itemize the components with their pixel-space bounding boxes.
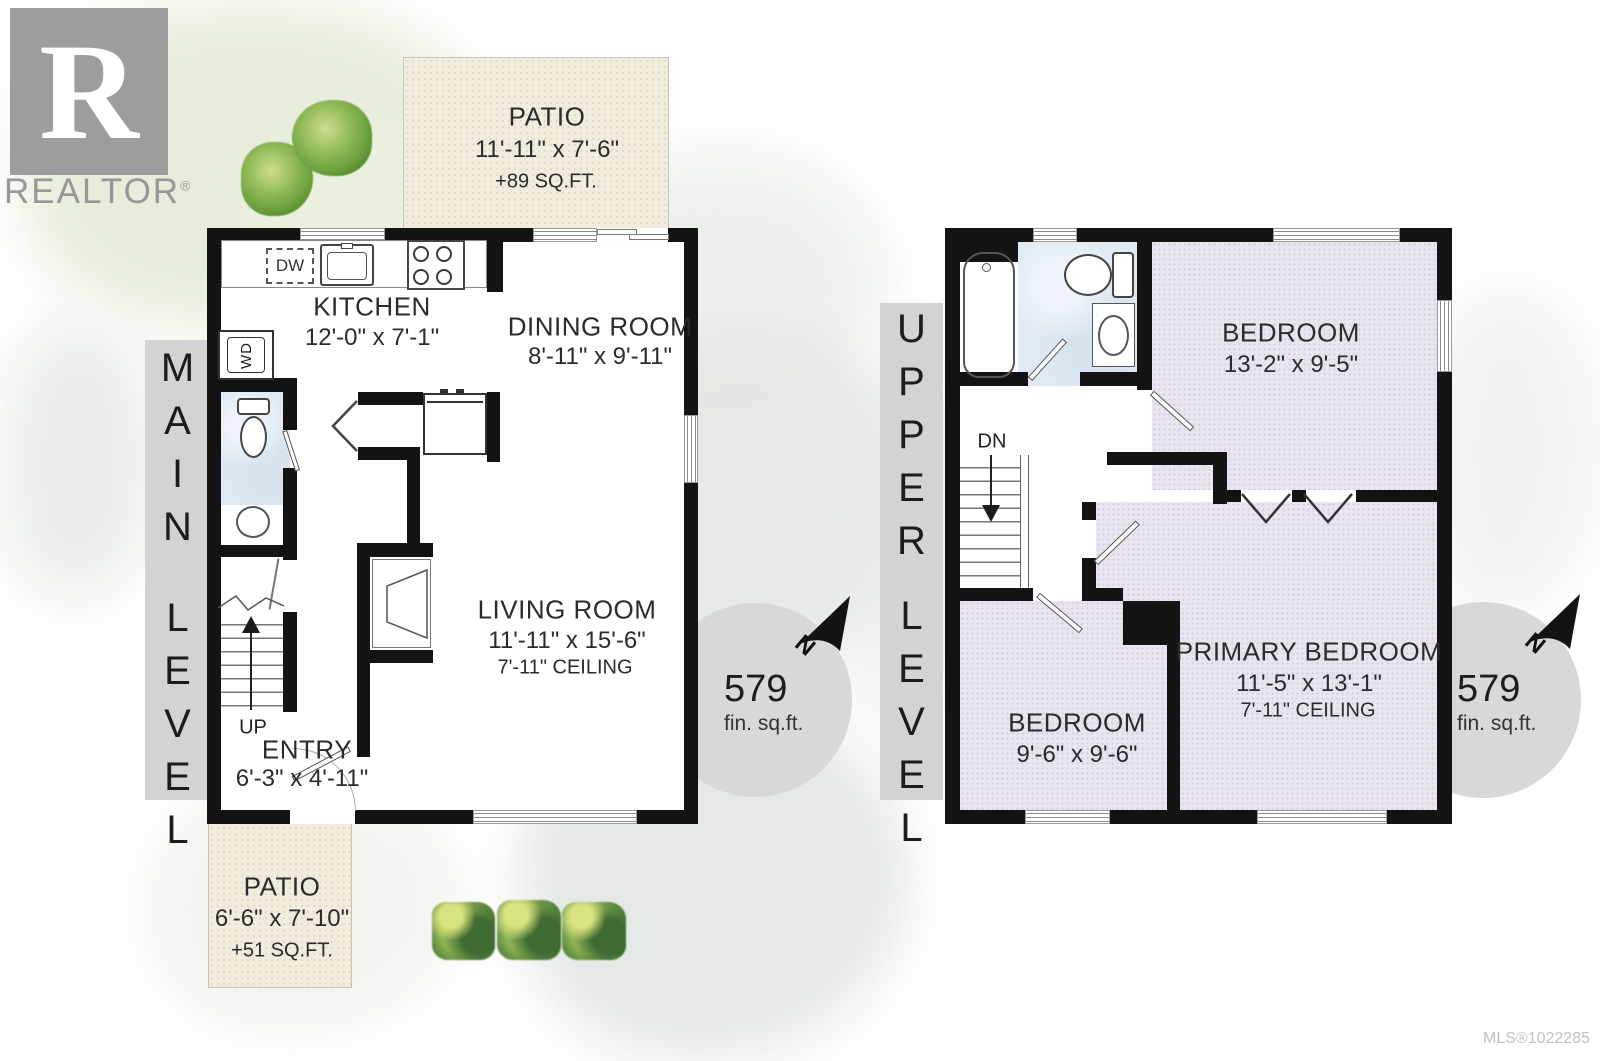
toilet-icon	[237, 398, 270, 415]
wall-segment	[1437, 228, 1452, 300]
burner-icon	[436, 246, 452, 262]
wall-segment	[487, 228, 503, 292]
wall-segment	[1080, 372, 1152, 386]
stairs-arrow-stem	[990, 455, 992, 507]
mls-number: MLS®1022285	[1483, 1030, 1590, 1048]
primary-bedroom-dims: 11'-5" x 13'-1"	[1236, 670, 1382, 698]
upper-level-bar-word2: LEVEL	[892, 594, 932, 859]
fridge-handle	[440, 389, 448, 394]
primary-bedroom-label: PRIMARY BEDROOM	[1176, 637, 1443, 668]
window	[1437, 300, 1452, 372]
wall-segment	[283, 392, 297, 430]
wall-segment	[358, 392, 423, 405]
wall-segment	[207, 810, 290, 824]
wall-segment	[945, 228, 960, 824]
sink-icon	[236, 506, 270, 538]
living-room-label: LIVING ROOM	[478, 595, 657, 626]
kitchen-dims: 12'-0" x 7'-1"	[305, 324, 439, 352]
stairs-arrow-up-icon	[242, 616, 260, 633]
bifold-door-icon	[328, 398, 360, 454]
living-room-dims: 11'-11" x 15'-6"	[488, 627, 645, 655]
tub-drain-icon	[982, 263, 991, 272]
floorplan-canvas: R REALTOR® MAIN LEVEL UPPER LEVEL	[0, 0, 1600, 1061]
toilet-icon	[1112, 252, 1134, 298]
wall-segment	[1096, 588, 1123, 601]
wall-segment	[684, 483, 698, 824]
wall-segment	[1082, 558, 1096, 601]
bifold-door-icon	[1240, 492, 1292, 526]
burner-icon	[413, 246, 429, 262]
burner-icon	[413, 269, 429, 285]
hedge-icon	[497, 900, 561, 960]
fridge-line	[427, 401, 483, 403]
hedge-icon	[432, 902, 495, 960]
wall-segment	[207, 228, 221, 824]
patio-top-dims: 11'-11" x 7'-6"	[475, 136, 619, 164]
burner-icon	[436, 269, 452, 285]
washer-dryer-label: WD	[238, 342, 255, 369]
wall-segment	[1123, 601, 1180, 645]
wall-segment	[945, 810, 1025, 824]
registered-mark: ®	[180, 177, 192, 193]
upper-level-bar: UPPER LEVEL	[880, 303, 943, 800]
wall-segment	[283, 612, 297, 712]
dining-room-dims: 8'-11" x 9'-11"	[528, 343, 672, 371]
wall-segment	[1213, 452, 1227, 504]
dishwasher-label: DW	[276, 256, 304, 276]
wall-segment	[1107, 452, 1227, 465]
wall-segment	[1437, 372, 1452, 824]
stairs-down-label: DN	[978, 431, 1007, 454]
upper-area-unit: fin. sq.ft.	[1457, 712, 1536, 736]
window	[473, 810, 637, 824]
stair-rail	[1020, 455, 1029, 588]
fireplace-icon	[375, 568, 429, 640]
wall-segment	[207, 378, 297, 392]
washer-dryer-inner: WD	[227, 337, 265, 373]
realtor-logo-letter: R	[39, 12, 139, 171]
realtor-wordmark-text: REALTOR	[4, 172, 180, 211]
window	[684, 415, 698, 483]
stair-break-line	[218, 594, 284, 612]
realtor-logo: R	[10, 8, 168, 175]
main-level-bar: MAIN LEVEL	[145, 340, 210, 800]
main-level-bar-word2: LEVEL	[158, 596, 198, 861]
wall-segment	[1227, 490, 1241, 502]
sink-icon	[1098, 315, 1129, 356]
window	[1257, 810, 1387, 824]
wall-segment	[357, 543, 433, 557]
living-room-ceiling: 7'-11" CEILING	[497, 657, 632, 680]
realtor-wordmark: REALTOR®	[4, 172, 192, 212]
entry-label: ENTRY	[262, 735, 352, 766]
patio-top-label: PATIO	[509, 102, 586, 133]
window	[1025, 810, 1110, 824]
bedroom-left-dims: 9'-6" x 9'-6"	[1017, 741, 1138, 769]
wall-segment	[1082, 502, 1096, 520]
wall-segment	[1137, 228, 1152, 390]
kitchen-sink-basin	[327, 252, 367, 280]
dining-room-label: DINING ROOM	[508, 312, 693, 343]
window	[1033, 228, 1077, 242]
fridge-handle	[456, 389, 464, 394]
wall-segment	[357, 650, 433, 663]
wall-segment	[1387, 810, 1452, 824]
wall-segment	[1077, 228, 1273, 242]
entry-dims: 6'-3" x 4'-11"	[236, 765, 368, 793]
wall-segment	[637, 810, 698, 824]
wall-segment	[1356, 490, 1437, 502]
wall-segment	[207, 545, 297, 557]
tree-icon	[292, 100, 372, 176]
bedroom-top-dims: 13'-2" x 9'-5"	[1224, 351, 1358, 379]
wall-segment	[358, 447, 420, 460]
wall-segment	[945, 588, 1033, 601]
primary-bedroom-ceiling: 7'-11" CEILING	[1240, 700, 1375, 723]
watercolor-blob	[0, 320, 160, 600]
window	[533, 228, 597, 242]
main-area-value: 579	[724, 668, 787, 711]
hedge-icon	[562, 902, 626, 960]
faucet-icon	[341, 243, 353, 249]
patio-bottom-area: +51 SQ.FT.	[231, 940, 333, 963]
wall-segment	[407, 460, 420, 545]
dishwasher-icon: DW	[266, 248, 314, 284]
kitchen-label: KITCHEN	[313, 292, 431, 323]
wall-segment	[487, 392, 500, 462]
window	[1273, 228, 1400, 242]
stairs-arrow-stem	[250, 630, 252, 710]
bifold-door-icon	[1302, 492, 1354, 526]
toilet-bowl-icon	[1064, 254, 1112, 296]
patio-bottom-dims: 6'-6" x 7'-10"	[215, 905, 349, 933]
wall-segment	[1167, 645, 1180, 810]
main-area-unit: fin. sq.ft.	[724, 712, 803, 736]
wall-segment	[1110, 810, 1257, 824]
patio-bottom-label: PATIO	[244, 872, 321, 903]
bedroom-left-label: BEDROOM	[1008, 708, 1146, 739]
main-level-bar-word1: MAIN	[158, 346, 198, 558]
toilet-bowl-icon	[240, 416, 267, 458]
sliding-door	[629, 234, 669, 240]
wall-segment	[355, 810, 473, 824]
upper-area-value: 579	[1457, 668, 1520, 711]
upper-level-bar-word1: UPPER	[892, 307, 932, 572]
bedroom-top-label: BEDROOM	[1222, 318, 1360, 349]
stairs-arrow-down-icon	[982, 505, 1000, 522]
patio-top-area: +89 SQ.FT.	[495, 171, 597, 194]
